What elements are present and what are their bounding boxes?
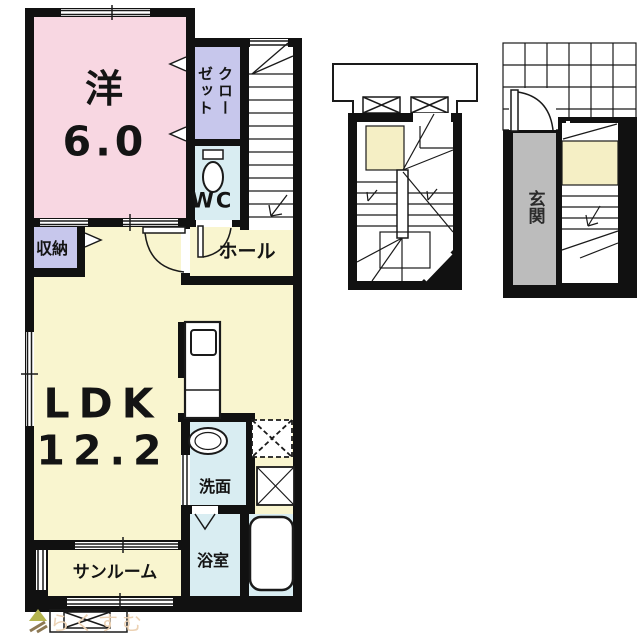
entrance-door-1f: [509, 88, 556, 131]
western-room-size: 6.0: [63, 122, 148, 163]
toilet-icon: [203, 150, 223, 192]
wc-label: WC: [191, 191, 234, 212]
western-room-label: 洋: [85, 70, 123, 108]
stair-landing-1f: [562, 141, 618, 185]
entrance-label: 玄関: [526, 190, 543, 234]
bathtub-icon: [250, 517, 293, 590]
sunroom-label: サンルーム: [73, 565, 158, 582]
watermark-logo: [29, 609, 47, 632]
stairwell-main: [245, 43, 293, 230]
floor-plan: 洋 6.0 クローゼット WC ホール 収納 LDK 12.2 洗面 浴室 サン…: [0, 0, 640, 640]
refrigerator-space: [252, 420, 292, 457]
washer-space: [257, 467, 294, 505]
porch-outline-2f: [333, 64, 477, 114]
closet-label: クローゼット: [195, 66, 235, 124]
watermark-text: らくすむ: [50, 613, 146, 633]
ldk-size: 12.2: [36, 431, 169, 472]
kitchen-counter: [185, 322, 220, 418]
ldk-label: LDK: [44, 384, 163, 425]
bathroom-label: 浴室: [197, 553, 229, 569]
storage-label: 収納: [36, 241, 68, 257]
stair-landing-2f: [366, 126, 404, 170]
washroom-label: 洗面: [199, 479, 231, 495]
washbasin-icon: [189, 428, 227, 454]
hall-label: ホール: [218, 243, 275, 262]
